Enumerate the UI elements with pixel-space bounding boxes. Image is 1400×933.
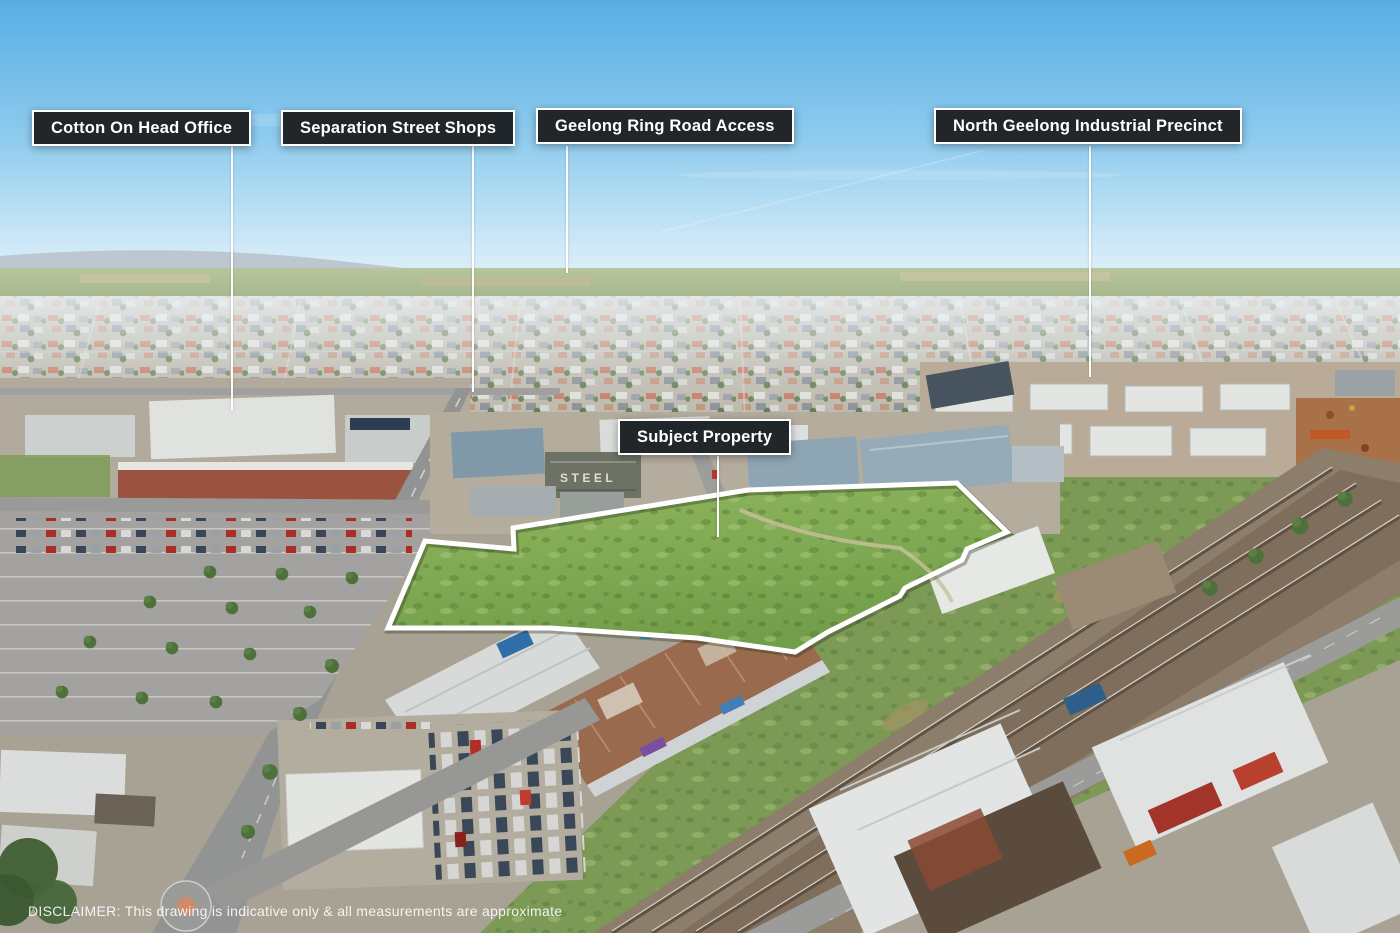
- aerial-marketing-image: STEEL: [0, 0, 1400, 933]
- leader-line-industrial-precinct: [1089, 146, 1091, 377]
- callout-north-geelong-industrial-precinct: North Geelong Industrial Precinct: [934, 108, 1242, 144]
- steel-building: STEEL: [545, 452, 641, 498]
- callout-geelong-ring-road-access: Geelong Ring Road Access: [536, 108, 794, 144]
- leader-line-subject-property: [717, 456, 719, 537]
- leader-line-cotton-on: [231, 146, 233, 410]
- disclaimer-text: DISCLAIMER: This drawing is indicative o…: [28, 903, 562, 919]
- callout-cotton-on-head-office: Cotton On Head Office: [32, 110, 251, 146]
- parked-cars: [12, 518, 412, 562]
- callout-separation-street-shops: Separation Street Shops: [281, 110, 515, 146]
- steel-roof-text: STEEL: [560, 471, 616, 485]
- leader-line-separation-street: [472, 146, 474, 392]
- callout-subject-property: Subject Property: [618, 419, 791, 455]
- cotton-on-building: [149, 395, 336, 459]
- separation-street: [0, 388, 560, 395]
- leader-line-ring-road: [566, 146, 568, 273]
